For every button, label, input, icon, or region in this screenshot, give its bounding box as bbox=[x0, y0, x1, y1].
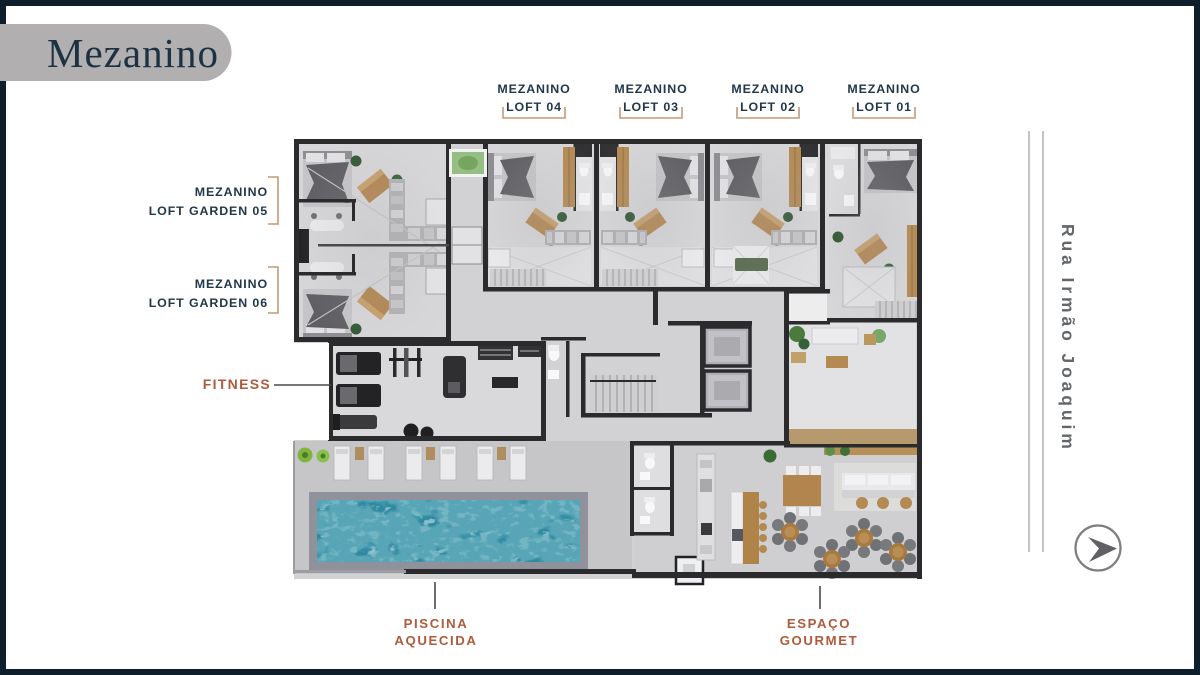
svg-text:PISCINA: PISCINA bbox=[404, 616, 469, 631]
svg-text:MEZANINO: MEZANINO bbox=[614, 82, 687, 96]
svg-text:LOFT 03: LOFT 03 bbox=[623, 100, 679, 114]
svg-text:MEZANINO: MEZANINO bbox=[497, 82, 570, 96]
svg-text:MEZANINO: MEZANINO bbox=[731, 82, 804, 96]
svg-text:LOFT GARDEN 06: LOFT GARDEN 06 bbox=[149, 296, 268, 310]
svg-text:MEZANINO: MEZANINO bbox=[195, 277, 268, 291]
svg-text:ESPAÇO: ESPAÇO bbox=[787, 616, 851, 631]
svg-text:AQUECIDA: AQUECIDA bbox=[394, 633, 477, 648]
svg-text:LOFT GARDEN 05: LOFT GARDEN 05 bbox=[149, 204, 268, 218]
svg-text:MEZANINO: MEZANINO bbox=[195, 185, 268, 199]
svg-text:FITNESS: FITNESS bbox=[203, 376, 271, 392]
svg-text:LOFT 04: LOFT 04 bbox=[506, 100, 562, 114]
svg-text:LOFT 02: LOFT 02 bbox=[740, 100, 796, 114]
svg-text:LOFT 01: LOFT 01 bbox=[856, 100, 912, 114]
svg-text:Rua Irmão Joaquim: Rua Irmão Joaquim bbox=[1058, 224, 1078, 453]
svg-text:GOURMET: GOURMET bbox=[780, 633, 859, 648]
svg-text:Mezanino: Mezanino bbox=[47, 30, 219, 76]
svg-text:MEZANINO: MEZANINO bbox=[847, 82, 920, 96]
